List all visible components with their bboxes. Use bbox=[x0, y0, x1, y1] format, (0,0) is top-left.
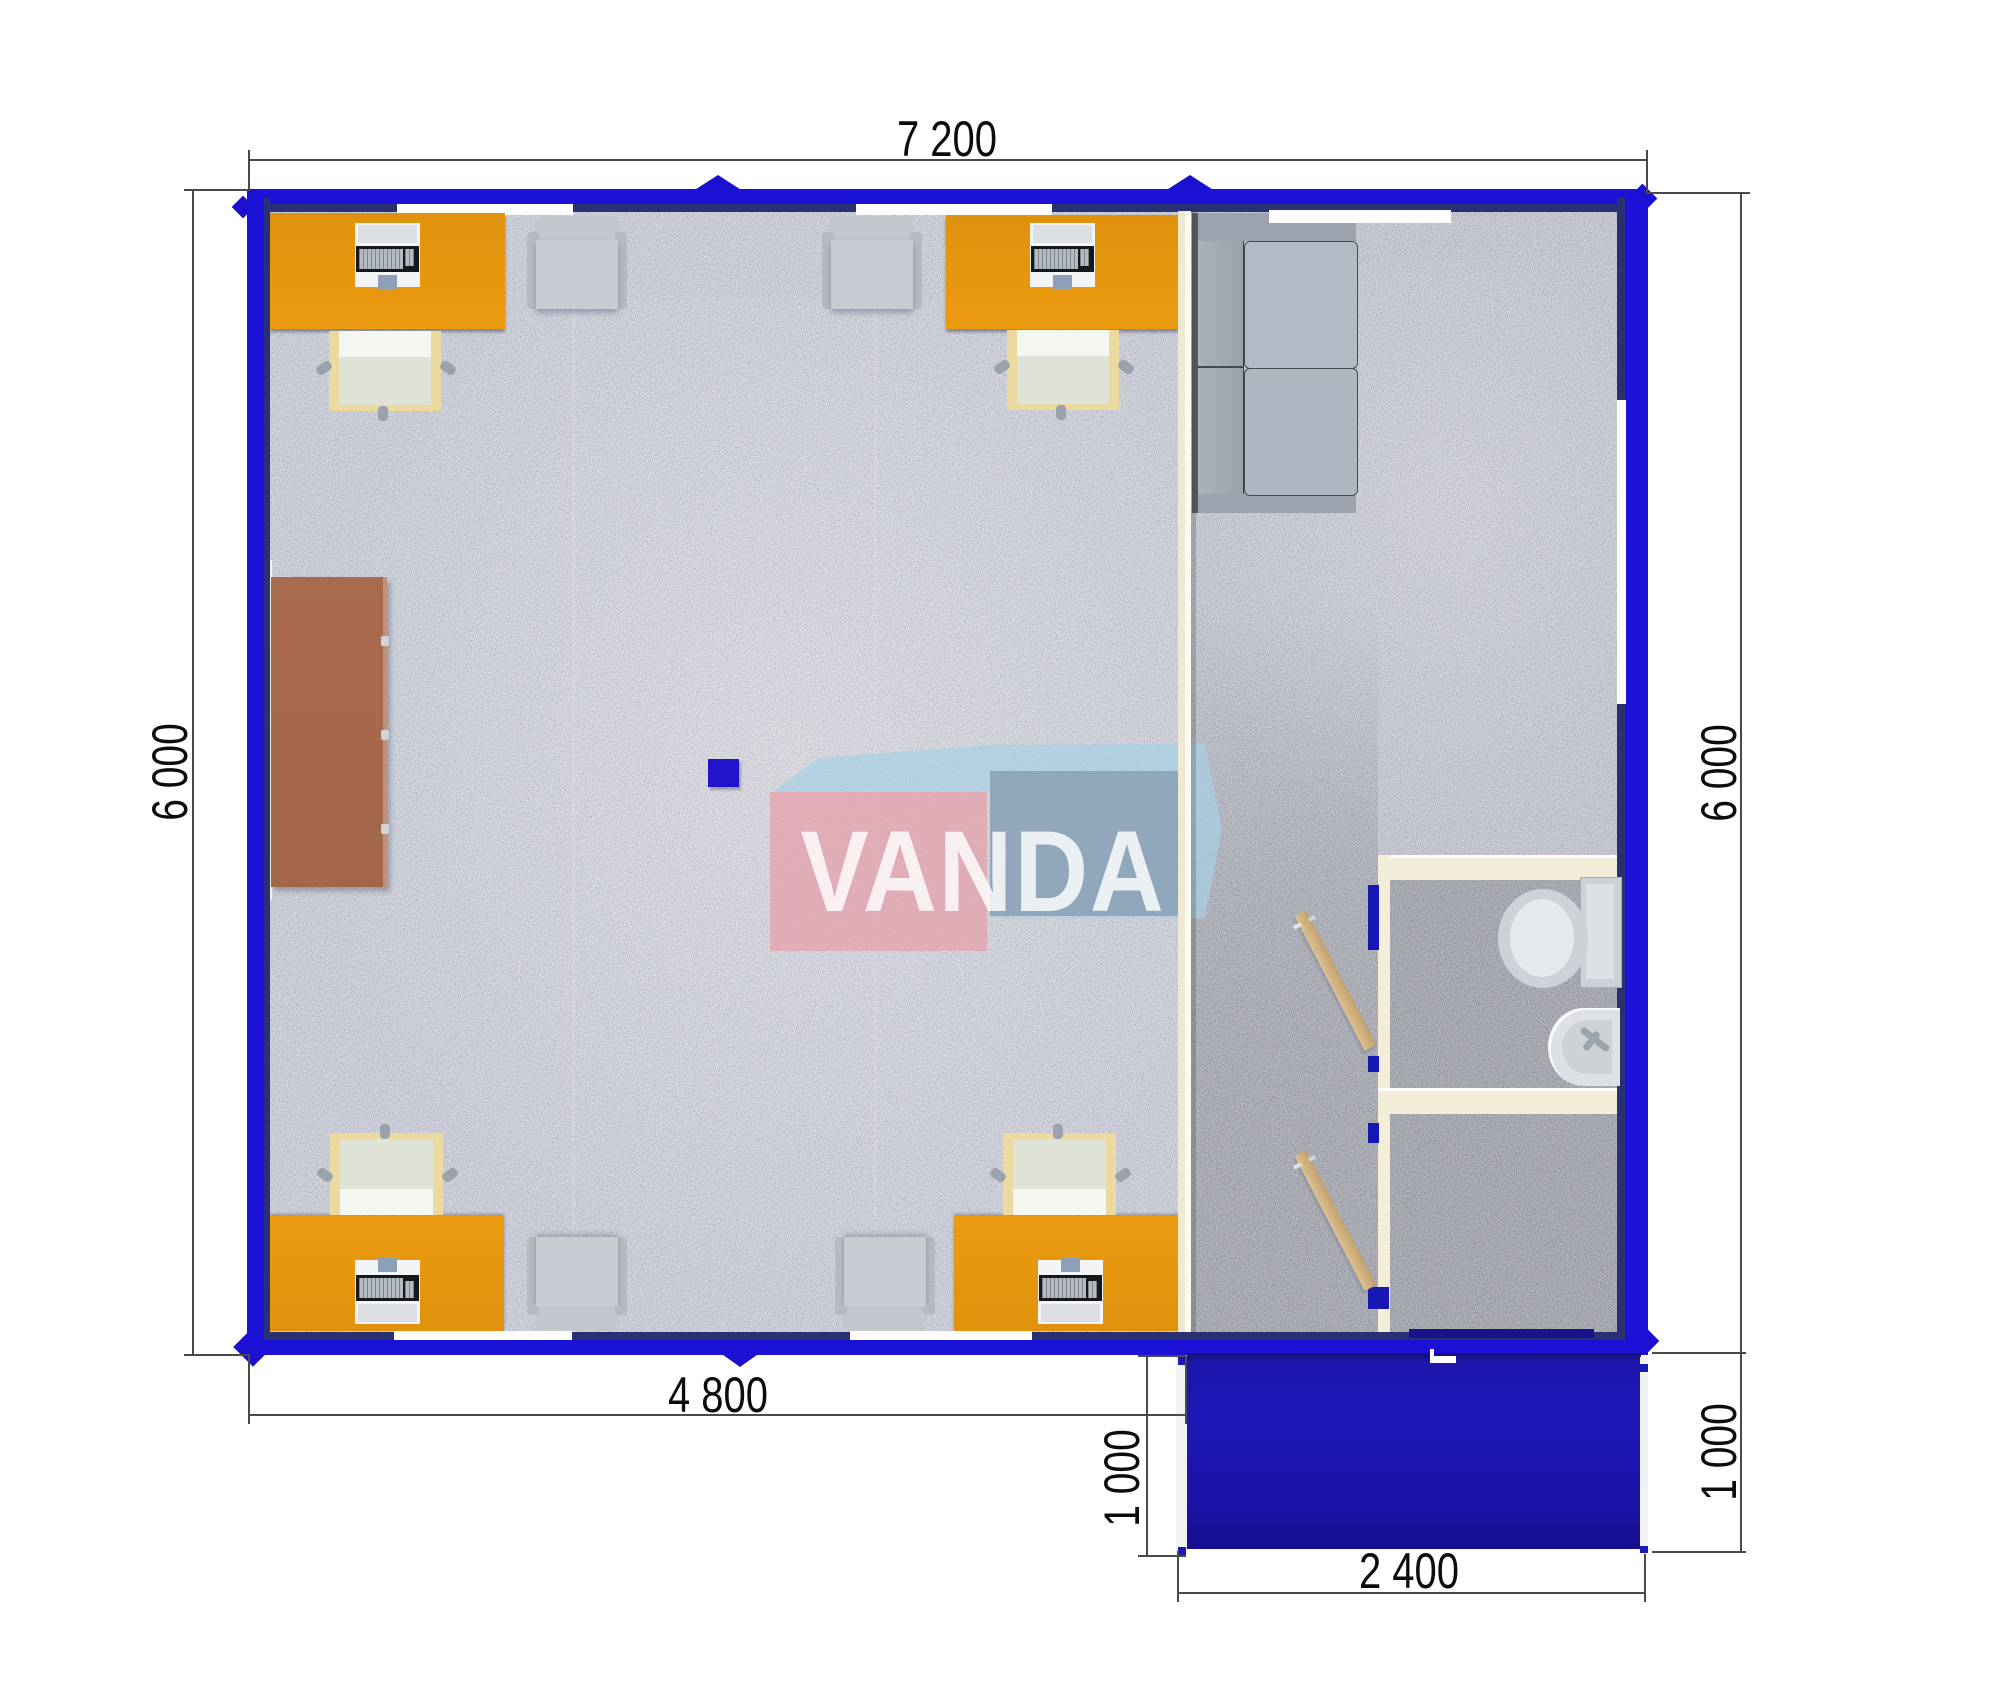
svg-text:VANDA: VANDA bbox=[800, 807, 1165, 936]
